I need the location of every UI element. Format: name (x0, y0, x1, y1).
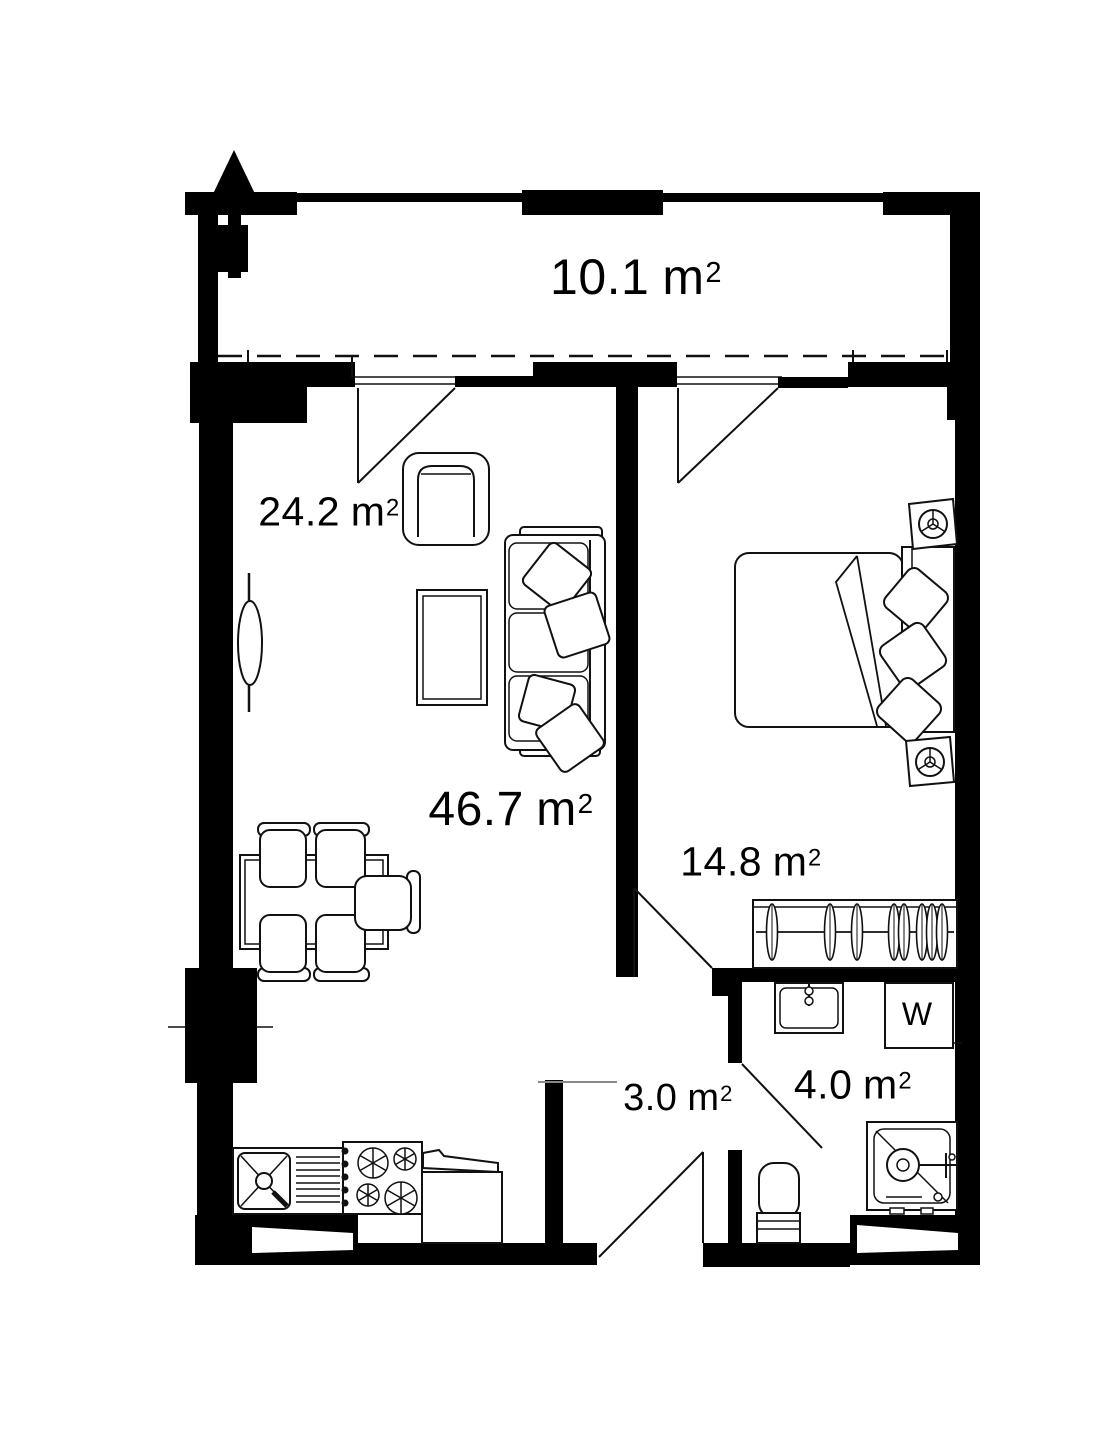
shower (867, 1122, 958, 1214)
wardrobe (753, 900, 957, 968)
bottom-wall-mid (358, 1243, 597, 1265)
divider-wall-living-bedroom (616, 376, 638, 977)
dining-chair (355, 871, 420, 933)
exit-arrow-head (212, 150, 256, 196)
bedroom-bottom-wall (712, 968, 980, 982)
toilet (757, 1163, 800, 1243)
dining-chair (258, 915, 310, 981)
left-wall (199, 362, 233, 968)
entry-door (599, 1152, 703, 1257)
washing-machine-label: W (902, 998, 932, 1030)
hallway-area-label: 3.0m2 (623, 1079, 733, 1117)
burner (357, 1184, 379, 1206)
bed (735, 547, 954, 745)
floor-plan: 10.1m2 24.2m2 46.7m2 14.8m2 3.0m2 4.0m2 … (0, 0, 1113, 1440)
exit-arrow-shaft (228, 190, 241, 278)
bottom-wall-right-mid (703, 1243, 850, 1267)
burner (394, 1148, 416, 1170)
armchair (403, 453, 489, 545)
bathroom-left-wall-upper (728, 982, 742, 1063)
sofa (505, 527, 611, 774)
balcony-wall-left (198, 192, 218, 362)
nightstand-lamp-top (909, 499, 957, 549)
nightstand-lamp-bottom (906, 737, 954, 786)
living-room-area-label: 46.7m2 (428, 786, 593, 834)
coffee-table (417, 590, 487, 705)
floor-plan-drawing (0, 0, 1113, 1440)
right-wall-pier (947, 363, 980, 420)
kitchen-counter (422, 1150, 502, 1243)
kitchen-sink (233, 1148, 345, 1214)
bedroom-furniture (735, 499, 957, 968)
facade-wall-mid (455, 376, 533, 387)
balcony-parapet-rail-1 (297, 193, 522, 202)
bedroom-balcony-door (678, 388, 778, 483)
bedroom-door (634, 888, 712, 977)
left-wall-pier (185, 968, 257, 1083)
living-room-zone-area-value: 24.2 (258, 489, 340, 535)
radiator (238, 573, 262, 712)
balcony-wall-right (950, 192, 980, 363)
bedroom-area-label: 14.8m2 (680, 842, 822, 883)
balcony-parapet-pier-mid (522, 190, 663, 215)
burner (358, 1148, 388, 1178)
stove (342, 1142, 423, 1214)
counter-lid (423, 1150, 498, 1172)
right-wall (955, 363, 980, 1265)
balcony-area-value: 10.1 (550, 249, 649, 305)
bedroom-area-value: 14.8 (680, 839, 762, 885)
hallway-left-wall (545, 1080, 563, 1243)
facade-wall-bedroom-left (533, 362, 677, 387)
facade-wall-bedroom-right (778, 377, 848, 388)
dining-set (240, 823, 420, 981)
burner (385, 1182, 417, 1214)
shower-foot (921, 1208, 933, 1214)
living-room-zone-area-label: 24.2m2 (258, 492, 400, 533)
hallway-area-value: 3.0 (623, 1077, 677, 1119)
shower-foot (890, 1208, 904, 1214)
living-room-area-value: 46.7 (428, 783, 523, 836)
balcony-parapet-rail-2 (663, 193, 883, 202)
bathroom-left-wall-lower (728, 1150, 742, 1245)
balcony-area-label: 10.1m2 (550, 252, 722, 302)
dining-chair (258, 823, 310, 887)
bathroom-area-value: 4.0 (794, 1062, 853, 1108)
bathroom-sink (775, 983, 843, 1033)
bathroom-area-label: 4.0m2 (794, 1065, 912, 1106)
